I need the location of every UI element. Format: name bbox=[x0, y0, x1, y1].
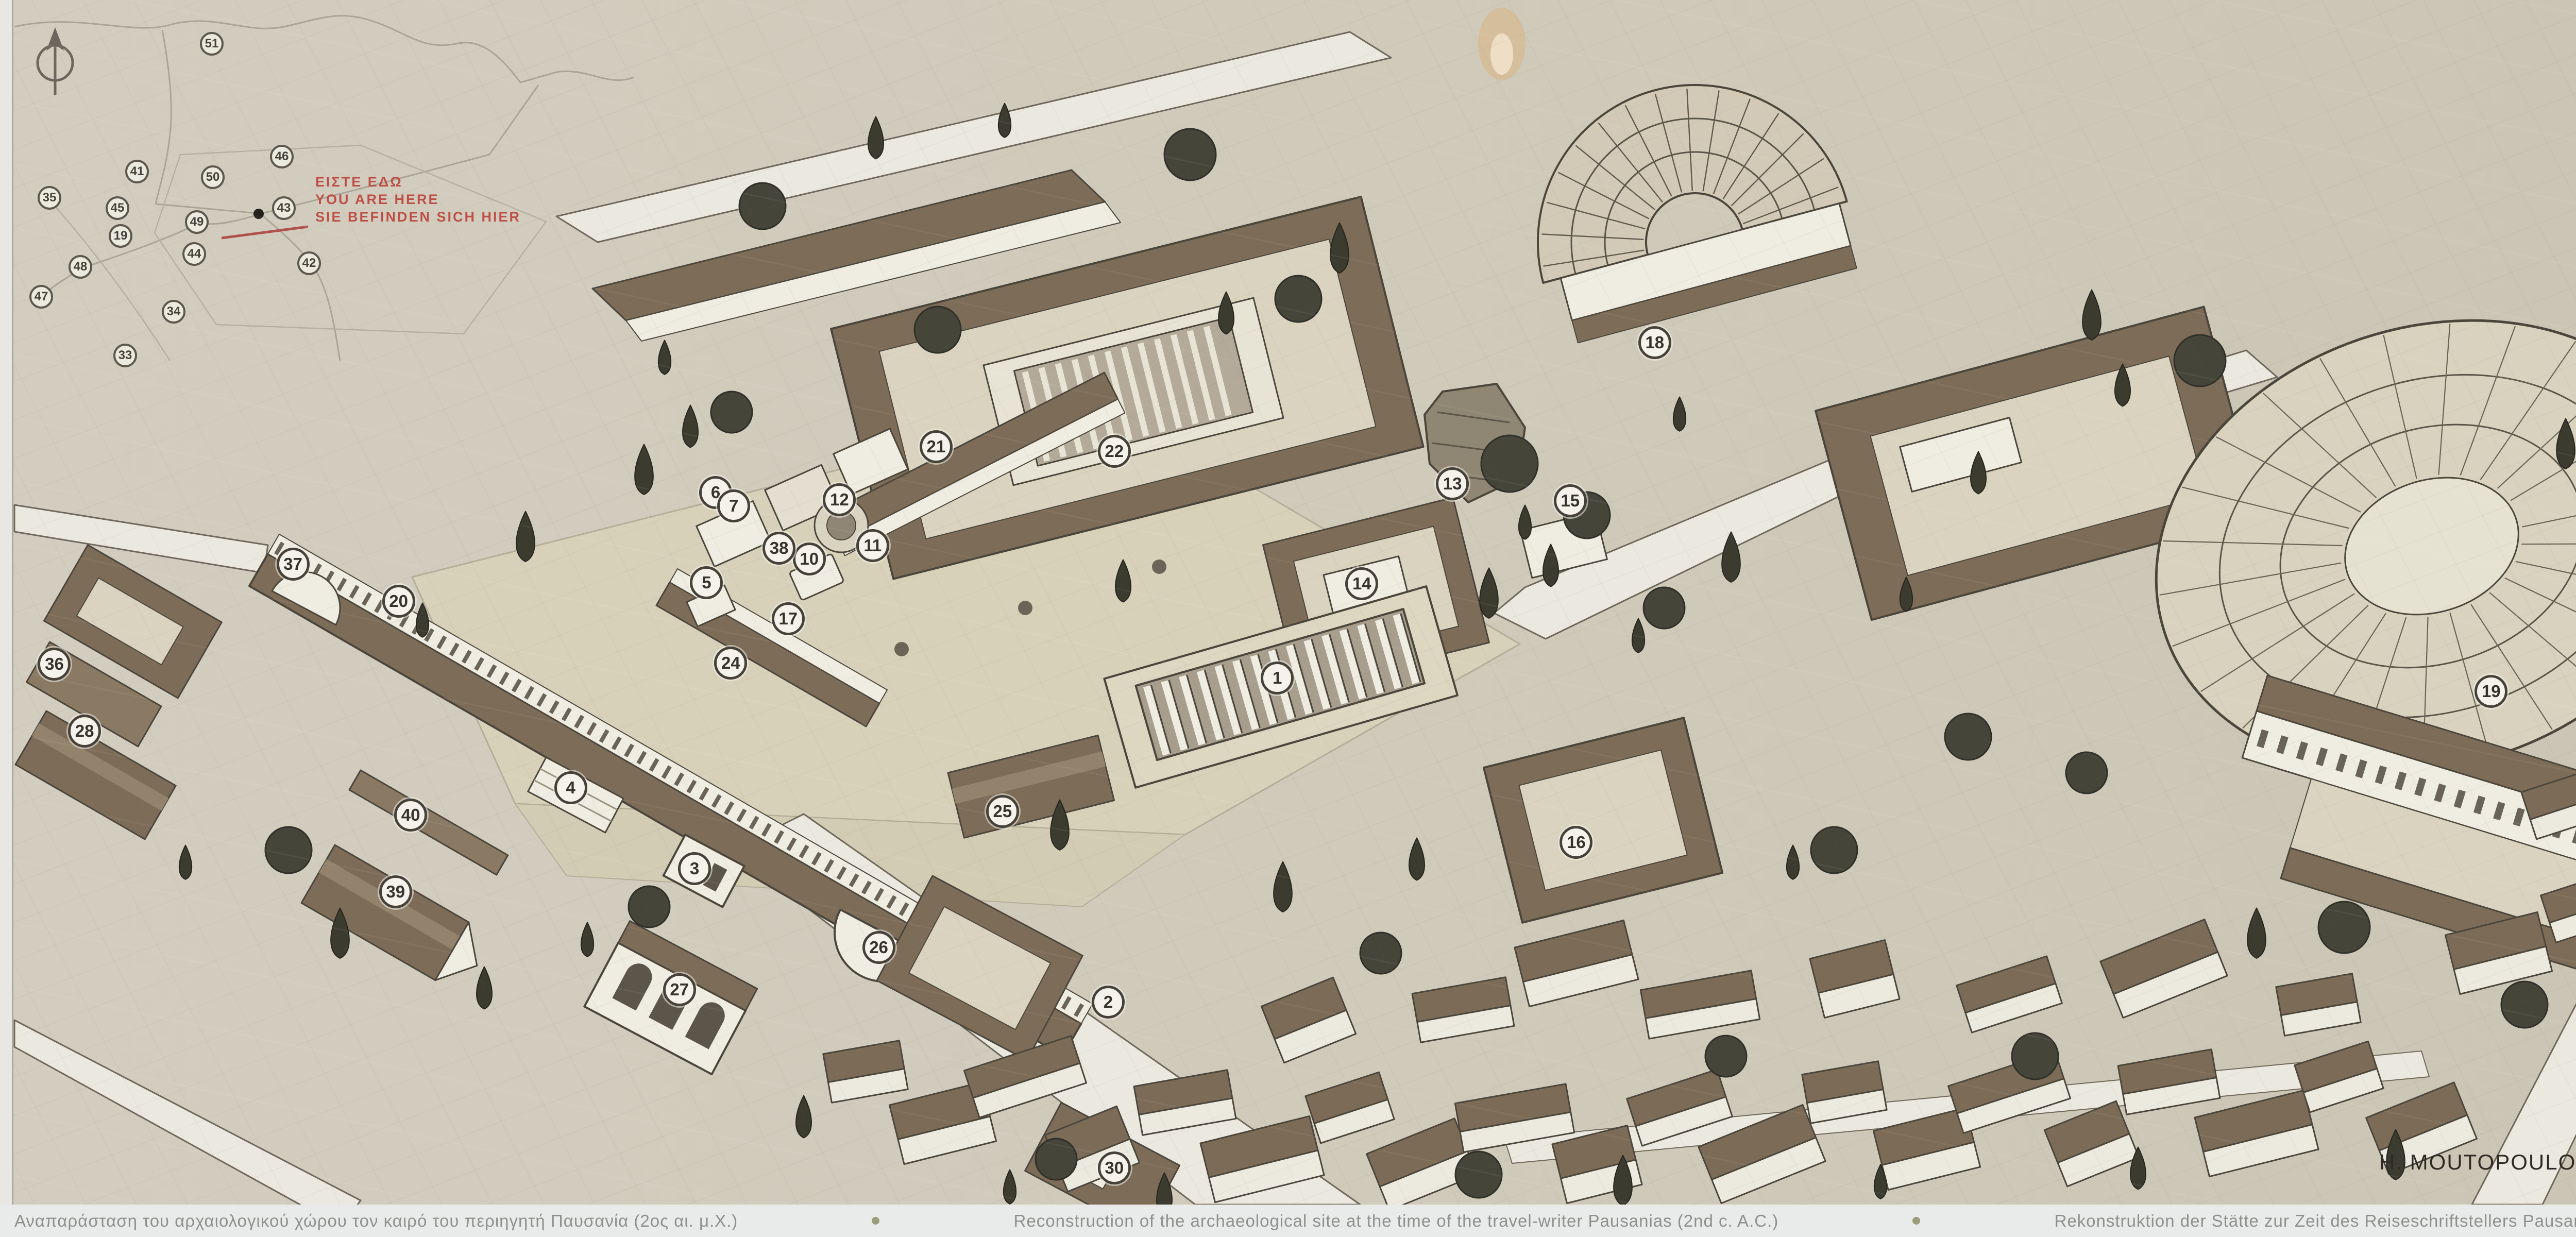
site-marker-5: 5 bbox=[690, 566, 723, 599]
inset-marker-45: 45 bbox=[106, 196, 129, 220]
inset-marker-41: 41 bbox=[125, 160, 149, 183]
site-marker-3: 3 bbox=[678, 852, 711, 885]
site-marker-36: 36 bbox=[38, 648, 71, 681]
inset-marker-43: 43 bbox=[272, 196, 296, 220]
site-marker-2: 2 bbox=[1092, 986, 1125, 1019]
site-marker-11: 11 bbox=[856, 529, 889, 562]
site-marker-10: 10 bbox=[793, 543, 826, 575]
inset-marker-19: 19 bbox=[109, 224, 132, 248]
you-are-here-de: SIE BEFINDEN SICH HIER bbox=[315, 208, 521, 226]
site-marker-20: 20 bbox=[382, 585, 415, 618]
site-marker-15: 15 bbox=[1554, 484, 1587, 517]
site-marker-12: 12 bbox=[823, 483, 856, 516]
site-marker-28: 28 bbox=[68, 715, 101, 748]
site-marker-16: 16 bbox=[1560, 826, 1592, 859]
site-marker-37: 37 bbox=[277, 548, 310, 581]
information-panel-photo: { "inset": { "you_are_here": { "el": "ΕΙ… bbox=[0, 0, 2576, 1237]
site-marker-40: 40 bbox=[394, 799, 427, 832]
inset-marker-47: 47 bbox=[29, 285, 53, 309]
site-marker-30: 30 bbox=[1098, 1151, 1131, 1184]
site-marker-26: 26 bbox=[862, 931, 895, 964]
inset-marker-34: 34 bbox=[162, 300, 185, 324]
inset-marker-49: 49 bbox=[185, 210, 209, 234]
caption-separator-dot bbox=[872, 1217, 879, 1225]
caption-greek: Αναπαράσταση του αρχαιολογικού χώρου τον… bbox=[14, 1211, 738, 1231]
site-marker-24: 24 bbox=[714, 647, 747, 680]
inset-marker-46: 46 bbox=[270, 145, 294, 168]
caption-separator-dot bbox=[1912, 1217, 1920, 1225]
site-marker-21: 21 bbox=[920, 430, 953, 463]
caption-german: Rekonstruktion der Stätte zur Zeit des R… bbox=[2054, 1211, 2576, 1231]
site-marker-38: 38 bbox=[762, 532, 795, 565]
inset-marker-44: 44 bbox=[182, 242, 206, 266]
you-are-here-en: YOU ARE HERE bbox=[315, 191, 521, 208]
caption-english: Reconstruction of the archaeological sit… bbox=[1014, 1211, 1779, 1231]
site-marker-22: 22 bbox=[1098, 435, 1131, 468]
site-marker-1: 1 bbox=[1261, 662, 1294, 694]
site-marker-27: 27 bbox=[663, 973, 696, 1006]
site-marker-39: 39 bbox=[379, 875, 412, 908]
caption-strip: Αναπαράσταση του αρχαιολογικού χώρου τον… bbox=[0, 1205, 2576, 1237]
inset-marker-51: 51 bbox=[200, 32, 224, 56]
site-marker-4: 4 bbox=[554, 771, 587, 804]
site-marker-25: 25 bbox=[986, 795, 1019, 828]
inset-marker-35: 35 bbox=[38, 186, 61, 210]
site-marker-13: 13 bbox=[1436, 467, 1469, 500]
inset-marker-50: 50 bbox=[201, 165, 225, 189]
inset-marker-33: 33 bbox=[113, 344, 137, 367]
you-are-here-label: ΕΙΣΤΕ ΕΔΩ YOU ARE HERE SIE BEFINDEN SICH… bbox=[315, 173, 521, 226]
site-marker-19: 19 bbox=[2475, 675, 2507, 708]
inset-marker-42: 42 bbox=[297, 251, 321, 275]
you-are-here-el: ΕΙΣΤΕ ΕΔΩ bbox=[315, 173, 521, 191]
inset-marker-48: 48 bbox=[69, 255, 92, 279]
site-marker-18: 18 bbox=[1638, 326, 1671, 359]
site-marker-17: 17 bbox=[772, 602, 805, 635]
site-marker-14: 14 bbox=[1345, 567, 1378, 600]
site-marker-7: 7 bbox=[717, 489, 750, 522]
